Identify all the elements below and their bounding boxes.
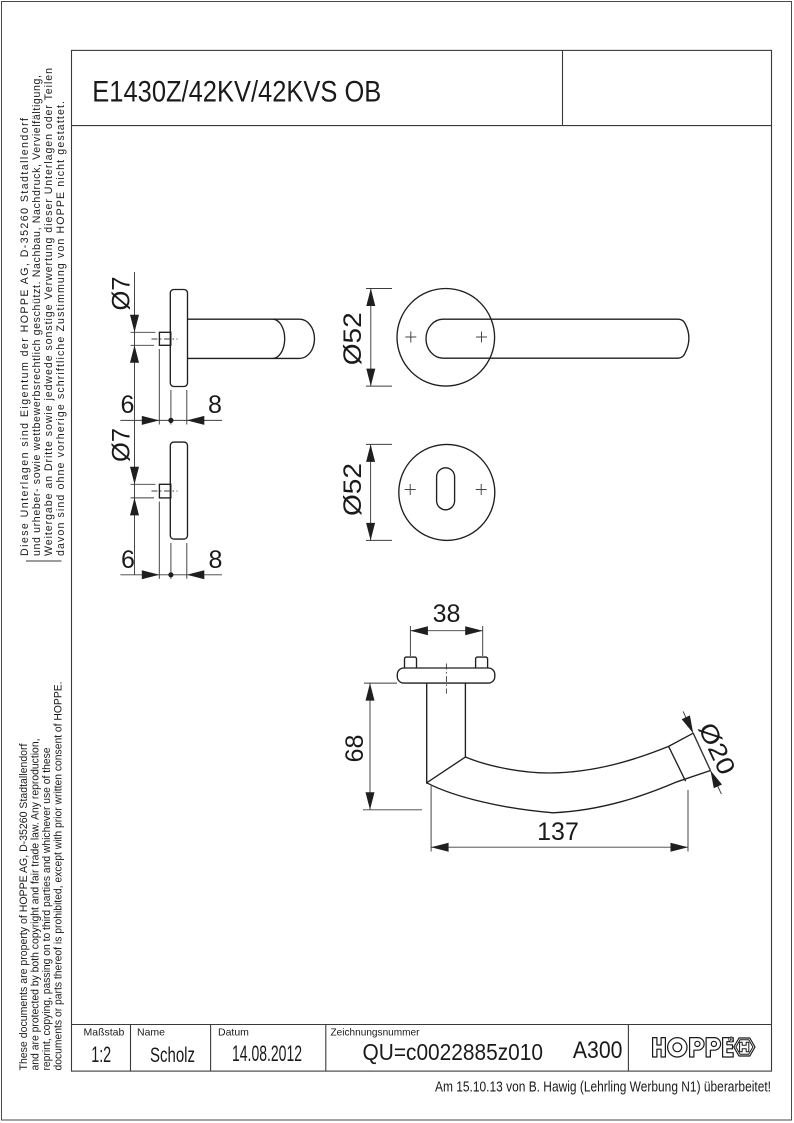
svg-text:Diese Unterlagen sind Eigentum: Diese Unterlagen sind Eigentum der HOPPE… — [19, 118, 31, 556]
svg-text:documents or parts thereof is: documents or parts thereof is prohibited… — [53, 682, 65, 1071]
svg-text:Ø52: Ø52 — [339, 312, 367, 365]
svg-text:Zeichnungsnummer: Zeichnungsnummer — [331, 1027, 420, 1039]
svg-text:Ø7: Ø7 — [108, 277, 136, 311]
svg-text:Datum: Datum — [218, 1027, 249, 1039]
svg-text:These documents are property o: These documents are property of HOPPE AG… — [18, 743, 30, 1070]
svg-text:Ø7: Ø7 — [108, 428, 136, 462]
svg-text:davon sind ohne vorherige schr: davon sind ohne vorherige schriftliche Z… — [55, 101, 67, 556]
svg-text:Maßstab: Maßstab — [84, 1027, 125, 1039]
svg-text:8: 8 — [208, 391, 222, 419]
svg-text:68: 68 — [341, 735, 369, 763]
svg-text:1:2: 1:2 — [91, 1042, 111, 1067]
svg-text:8: 8 — [209, 546, 223, 574]
svg-text:Weitergabe an Dritte sowie jed: Weitergabe an Dritte sowie jedwede sonst… — [43, 68, 55, 556]
svg-text:137: 137 — [537, 818, 579, 846]
svg-text:E1430Z/42KV/42KVS OB: E1430Z/42KV/42KVS OB — [92, 75, 381, 108]
svg-text:QU=c0022885z010: QU=c0022885z010 — [363, 1039, 544, 1065]
svg-text:und urheber- sowie wettbewerbs: und urheber- sowie wettbewerbsrechtlich … — [31, 75, 43, 556]
svg-text:and are protected by both copy: and are protected by both copyright and … — [30, 739, 42, 1071]
svg-text:A300: A300 — [573, 1037, 623, 1064]
svg-text:Ø52: Ø52 — [339, 463, 367, 516]
svg-text:reprint, copying, passing on t: reprint, copying, passing on to third pa… — [41, 747, 53, 1070]
svg-text:6: 6 — [121, 546, 135, 574]
svg-text:Am 15.10.13 von B. Hawig (Lehr: Am 15.10.13 von B. Hawig (Lehrling Werbu… — [435, 1080, 771, 1096]
svg-text:14.08.2012: 14.08.2012 — [232, 1041, 302, 1066]
svg-text:Ø20: Ø20 — [692, 718, 740, 779]
svg-text:Name: Name — [137, 1027, 165, 1039]
svg-text:6: 6 — [121, 391, 135, 419]
svg-text:38: 38 — [433, 600, 461, 628]
svg-text:Scholz: Scholz — [150, 1044, 195, 1067]
